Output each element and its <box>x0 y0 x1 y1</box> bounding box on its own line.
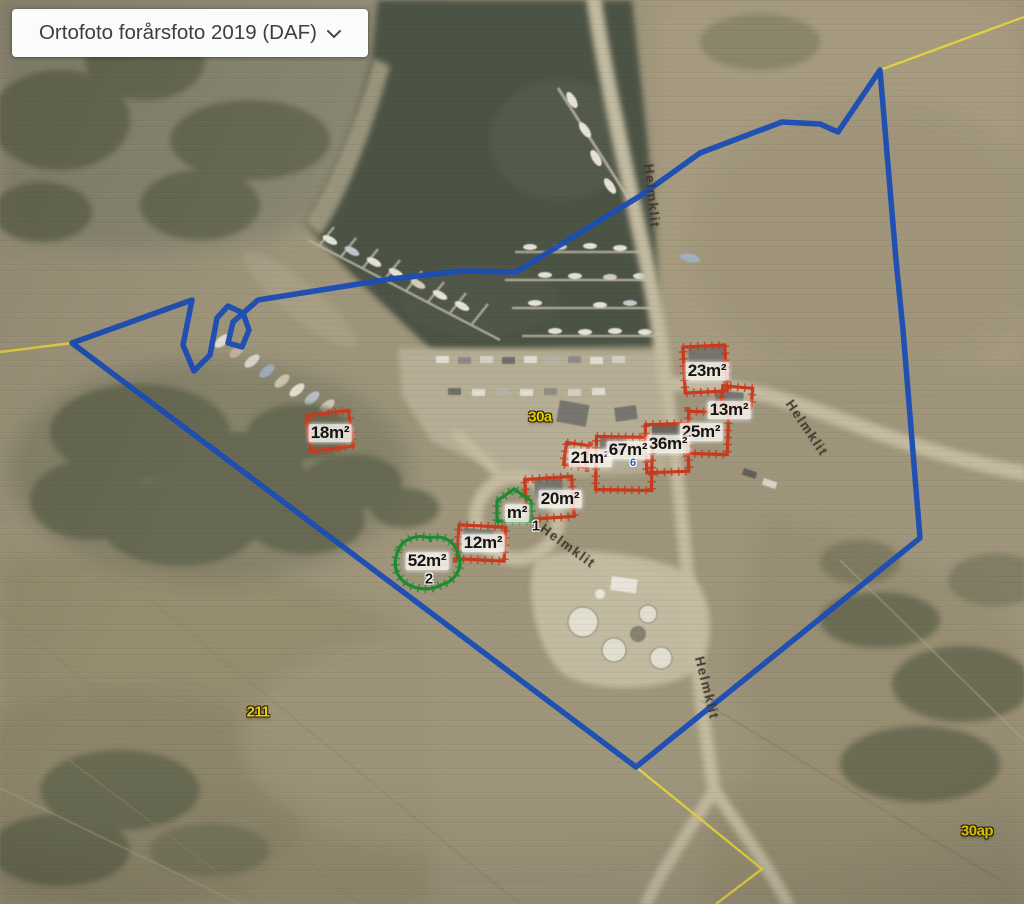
cadastral-lines <box>0 17 1024 904</box>
building-outline-markers-red <box>307 345 753 561</box>
building-outline-markers-green <box>395 489 531 589</box>
map-viewport[interactable]: 18m²23m²13m²25m²36m²21m²67m²20m²12m²52m²… <box>0 0 1024 904</box>
basemap-layer-label: Ortofoto forårsfoto 2019 (DAF) <box>39 21 317 45</box>
basemap-layer-dropdown[interactable]: Ortofoto forårsfoto 2019 (DAF) <box>12 9 368 57</box>
property-boundary-line <box>72 70 920 767</box>
chevron-down-icon <box>327 30 341 39</box>
map-overlays <box>0 0 1024 904</box>
